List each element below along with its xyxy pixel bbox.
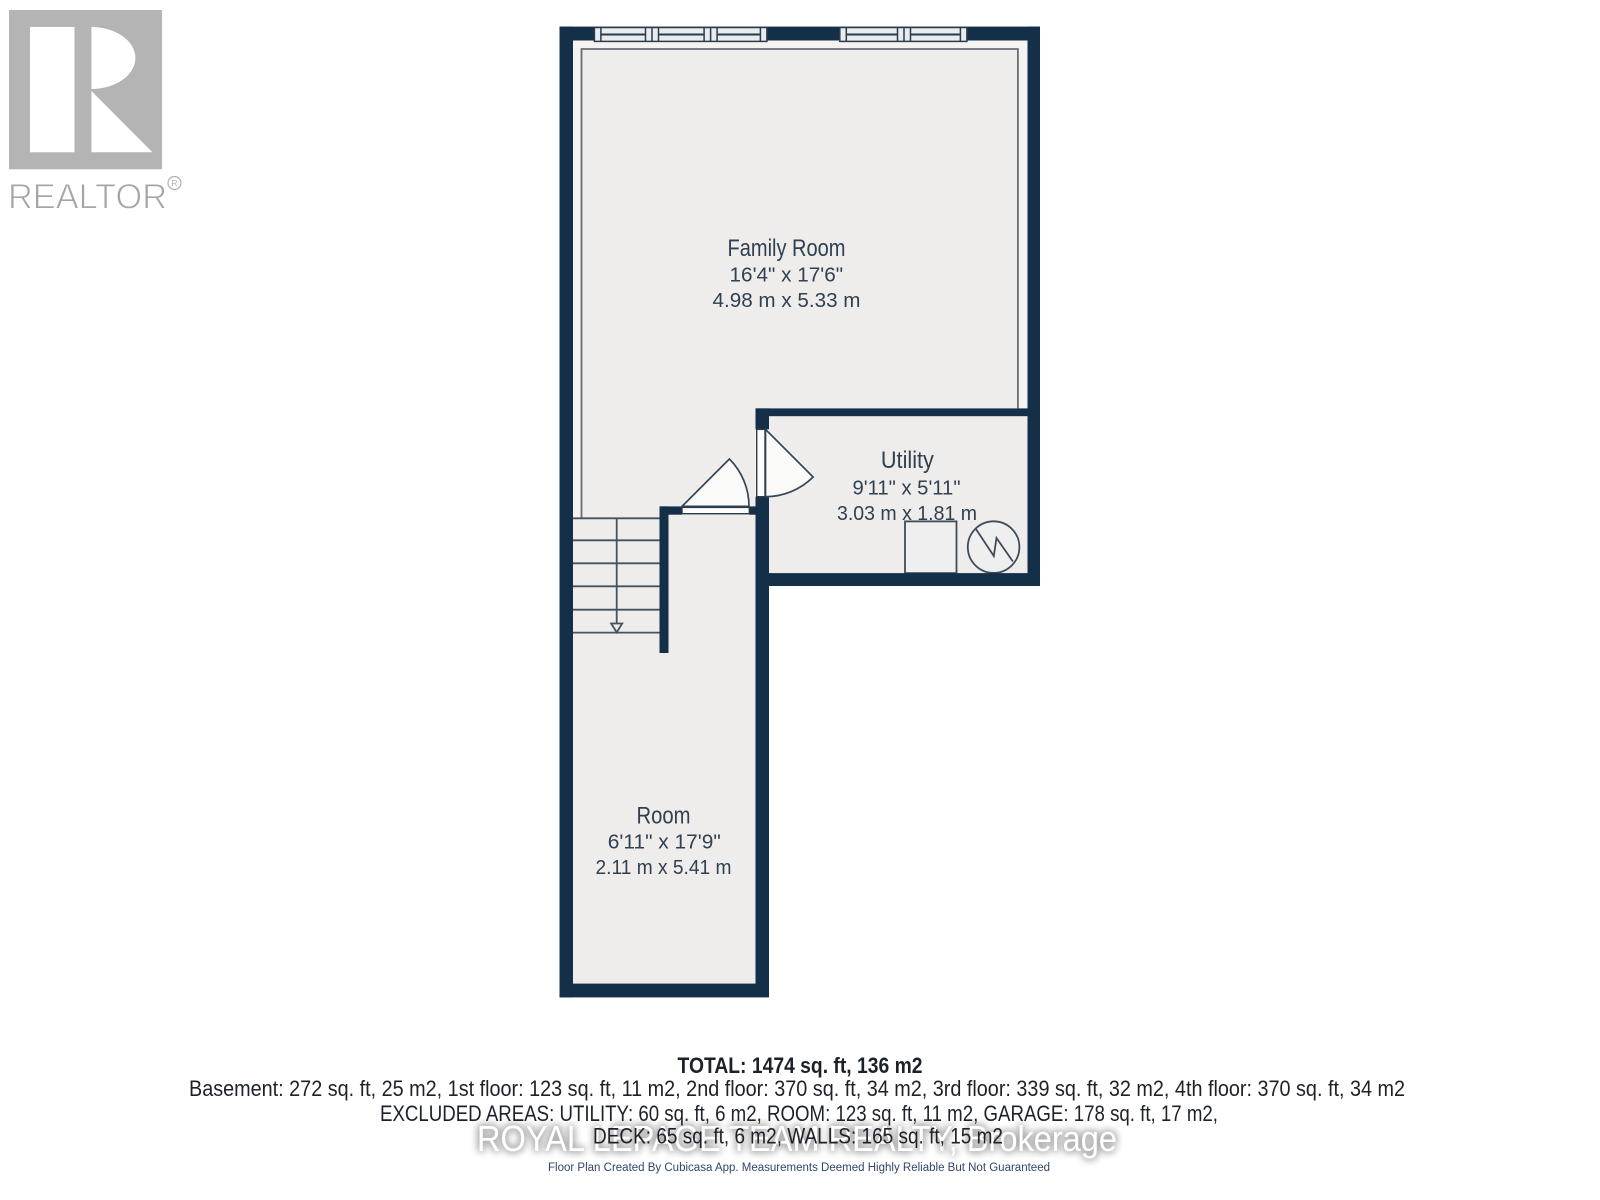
svg-text:9'11" x 5'11": 9'11" x 5'11": [853, 478, 961, 500]
svg-text:Basement: 272 sq. ft, 25 m2, 1: Basement: 272 sq. ft, 25 m2, 1st floor: …: [189, 1076, 1405, 1101]
svg-text:Utility: Utility: [881, 447, 934, 474]
svg-text:DECK: 65 sq. ft, 6 m2, WALLS:: DECK: 65 sq. ft, 6 m2, WALLS: 165 sq. ft…: [593, 1124, 1003, 1149]
svg-text:2.11 m x 5.41 m: 2.11 m x 5.41 m: [596, 857, 732, 879]
svg-text:16'4" x 17'6": 16'4" x 17'6": [730, 264, 844, 286]
svg-text:3.03 m x 1.81 m: 3.03 m x 1.81 m: [837, 503, 977, 525]
svg-text:TOTAL: 1474 sq. ft, 136 m2: TOTAL: 1474 sq. ft, 136 m2: [678, 1053, 923, 1078]
svg-text:EXCLUDED AREAS: UTILITY: 60 sq: EXCLUDED AREAS: UTILITY: 60 sq. ft, 6 m2…: [380, 1101, 1218, 1126]
svg-text:6'11" x 17'9": 6'11" x 17'9": [608, 832, 721, 854]
svg-text:REALTOR: REALTOR: [8, 178, 167, 217]
svg-text:R: R: [171, 178, 177, 188]
svg-text:4.98 m x 5.33 m: 4.98 m x 5.33 m: [713, 290, 861, 312]
svg-text:Family Room: Family Room: [728, 235, 846, 262]
svg-text:Room: Room: [637, 802, 691, 829]
svg-text:Floor Plan Created By Cubicasa: Floor Plan Created By Cubicasa App. Meas…: [548, 1162, 1050, 1174]
